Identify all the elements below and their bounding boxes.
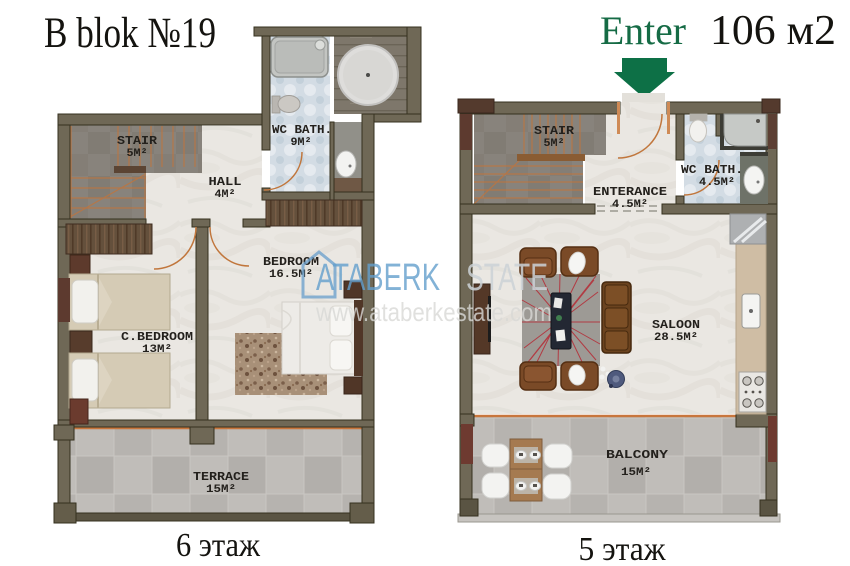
svg-text:106 м2: 106 м2: [710, 8, 836, 54]
svg-text:4M²: 4M²: [215, 189, 236, 201]
svg-text:STAIR: STAIR: [117, 134, 158, 148]
svg-text:6 этаж: 6 этаж: [176, 527, 260, 564]
svg-text:5 этаж: 5 этаж: [579, 531, 666, 566]
svg-text:9M²: 9M²: [291, 137, 312, 149]
svg-text:HALL: HALL: [209, 175, 242, 189]
svg-text:WC BATH.: WC BATH.: [681, 163, 743, 177]
svg-text:ENTERANCE: ENTERANCE: [593, 185, 667, 199]
svg-text:4.5M²: 4.5M²: [699, 177, 735, 189]
svg-text:STATE: STATE: [466, 257, 548, 299]
svg-text:SALOON: SALOON: [652, 318, 700, 332]
svg-text:16.5M²: 16.5M²: [269, 269, 313, 281]
svg-text:STAIR: STAIR: [534, 124, 575, 138]
svg-text:B blok №19: B blok №19: [44, 10, 216, 57]
svg-text:15M²: 15M²: [621, 467, 651, 479]
svg-text:ATABERK: ATABERK: [316, 257, 440, 299]
svg-text:5M²: 5M²: [544, 138, 565, 150]
svg-text:4.5M²: 4.5M²: [612, 199, 648, 211]
svg-text:13M²: 13M²: [142, 344, 172, 356]
svg-text:5M²: 5M²: [127, 148, 148, 160]
svg-text:C.BEDROOM: C.BEDROOM: [121, 330, 193, 344]
svg-text:WC BATH.: WC BATH.: [272, 123, 332, 137]
svg-text:15M²: 15M²: [206, 484, 236, 496]
svg-text:Enter: Enter: [600, 8, 686, 53]
svg-text:BALCONY: BALCONY: [606, 448, 669, 462]
svg-text:www.ataberkestate.com: www.ataberkestate.com: [315, 297, 552, 327]
svg-text:28.5M²: 28.5M²: [654, 332, 698, 344]
svg-text:TERRACE: TERRACE: [193, 470, 249, 484]
